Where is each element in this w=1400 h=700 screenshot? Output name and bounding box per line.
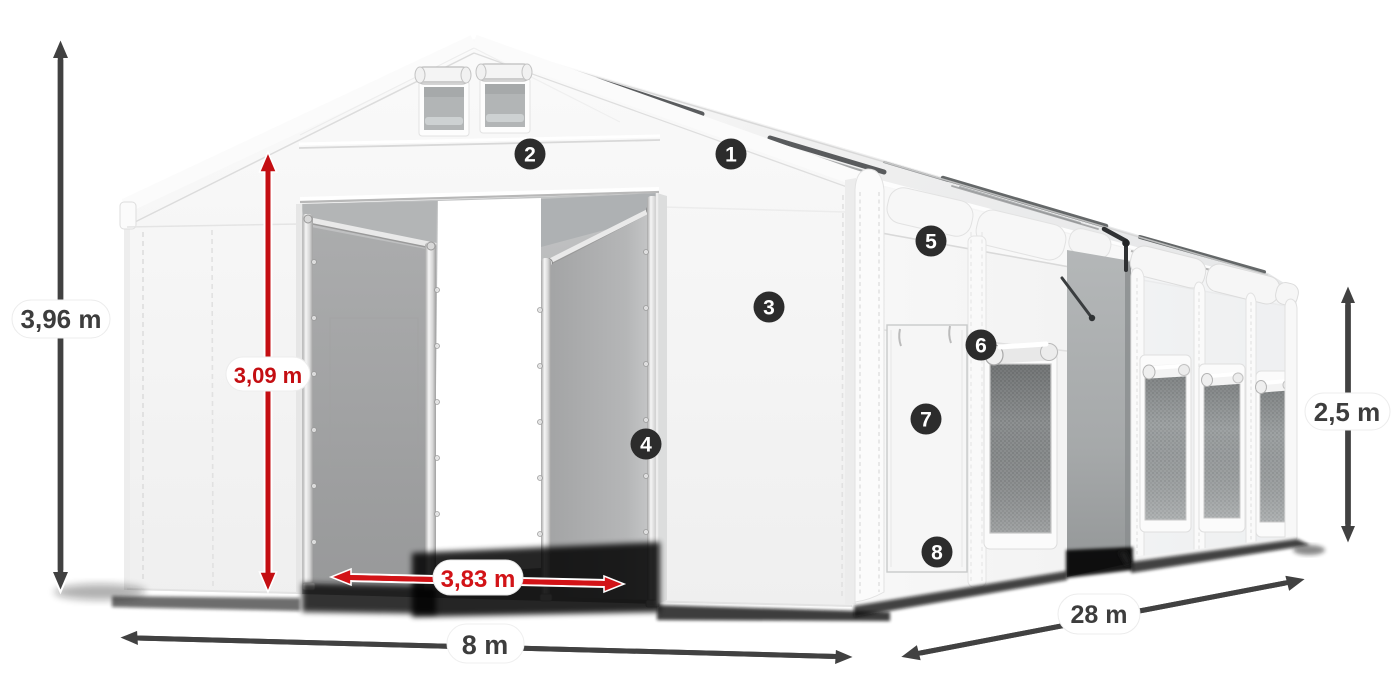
svg-text:8 m: 8 m <box>462 630 509 660</box>
svg-text:1: 1 <box>725 144 737 167</box>
svg-text:8: 8 <box>931 542 943 565</box>
svg-text:5: 5 <box>925 231 937 254</box>
svg-text:2,5 m: 2,5 m <box>1314 397 1381 427</box>
svg-text:6: 6 <box>975 335 987 358</box>
svg-text:2: 2 <box>524 144 536 167</box>
svg-text:3,96 m: 3,96 m <box>21 304 102 334</box>
svg-text:4: 4 <box>640 434 652 457</box>
svg-text:7: 7 <box>920 409 932 432</box>
svg-text:3: 3 <box>763 297 775 320</box>
svg-text:3,83 m: 3,83 m <box>441 566 516 593</box>
svg-text:28 m: 28 m <box>1071 601 1128 629</box>
svg-text:3,09 m: 3,09 m <box>234 363 303 388</box>
